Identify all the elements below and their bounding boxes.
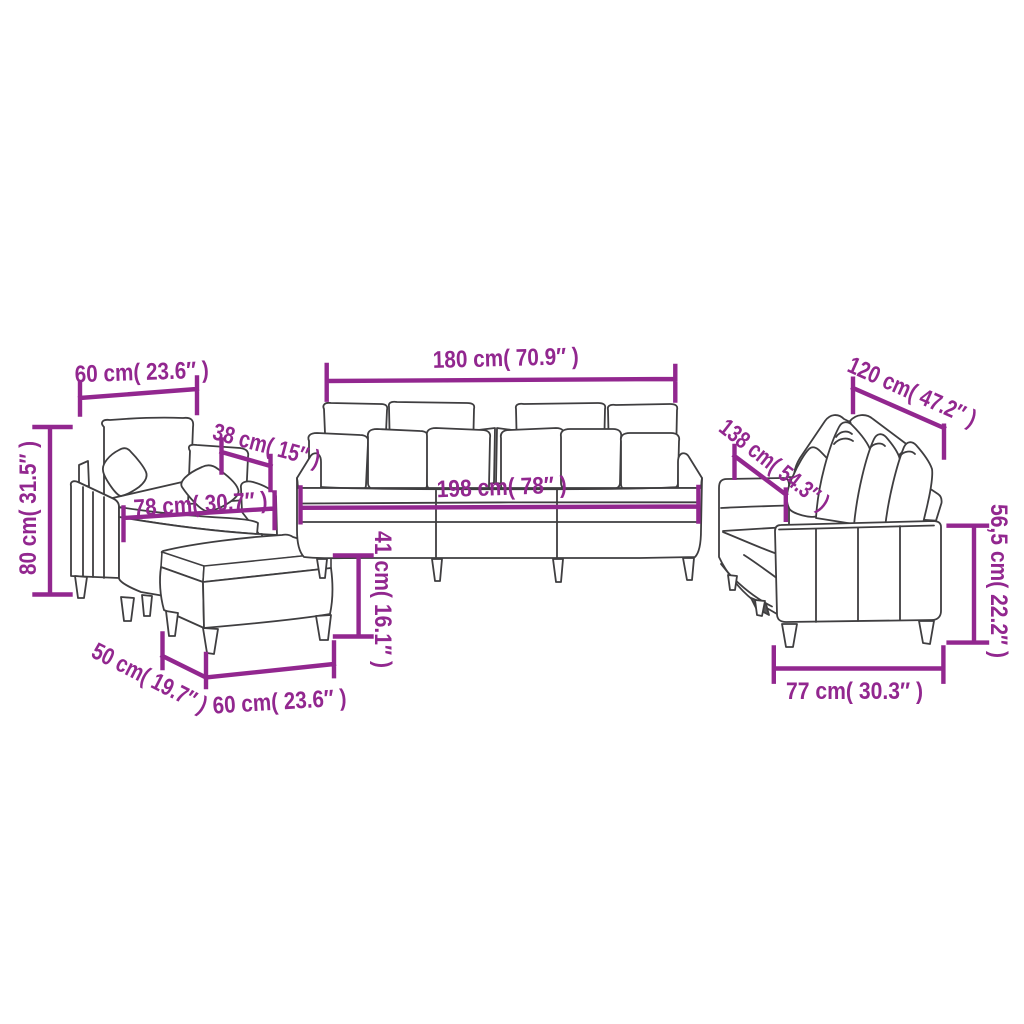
svg-text:180 cm( 70.9″ ): 180 cm( 70.9″ ) <box>432 343 579 374</box>
svg-text:56,5 cm( 22.2″ ): 56,5 cm( 22.2″ ) <box>985 504 1012 658</box>
svg-text:41 cm( 16.1″ ): 41 cm( 16.1″ ) <box>369 531 396 668</box>
svg-text:77 cm( 30.3″ ): 77 cm( 30.3″ ) <box>786 678 923 705</box>
svg-text:198 cm( 78″ ): 198 cm( 78″ ) <box>436 472 567 504</box>
svg-text:80 cm( 31.5″ ): 80 cm( 31.5″ ) <box>15 441 42 575</box>
svg-text:60 cm( 23.6″ ): 60 cm( 23.6″ ) <box>74 357 209 389</box>
